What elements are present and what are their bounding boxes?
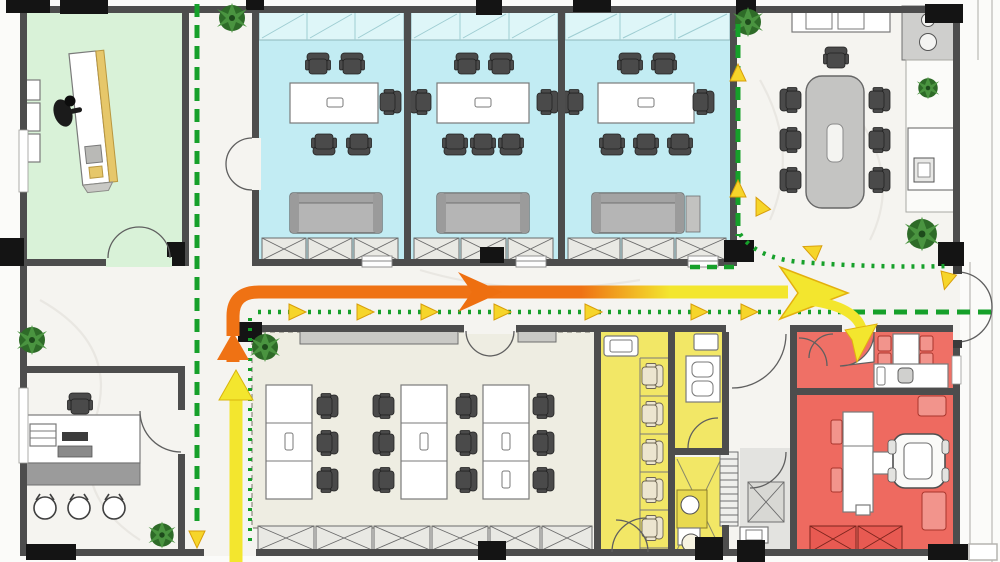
corridor-sideboards	[300, 330, 556, 344]
glass-partition-strip	[259, 12, 730, 40]
conference-table-gray	[806, 76, 864, 208]
sink-icon	[681, 496, 699, 514]
keyboard-icon	[58, 446, 92, 457]
treatment-chair-icon	[888, 434, 949, 488]
meeting-room-tables	[290, 83, 694, 123]
meeting-room-sofas	[290, 193, 700, 233]
floor-plan-svg	[0, 0, 1000, 562]
guest-stools	[34, 494, 125, 519]
monitor-icon	[62, 432, 88, 441]
basin-icon	[920, 34, 937, 51]
open-office-cabinets	[258, 526, 592, 550]
kitchenette	[902, 6, 956, 212]
floor-plan-canvas	[0, 0, 1000, 562]
